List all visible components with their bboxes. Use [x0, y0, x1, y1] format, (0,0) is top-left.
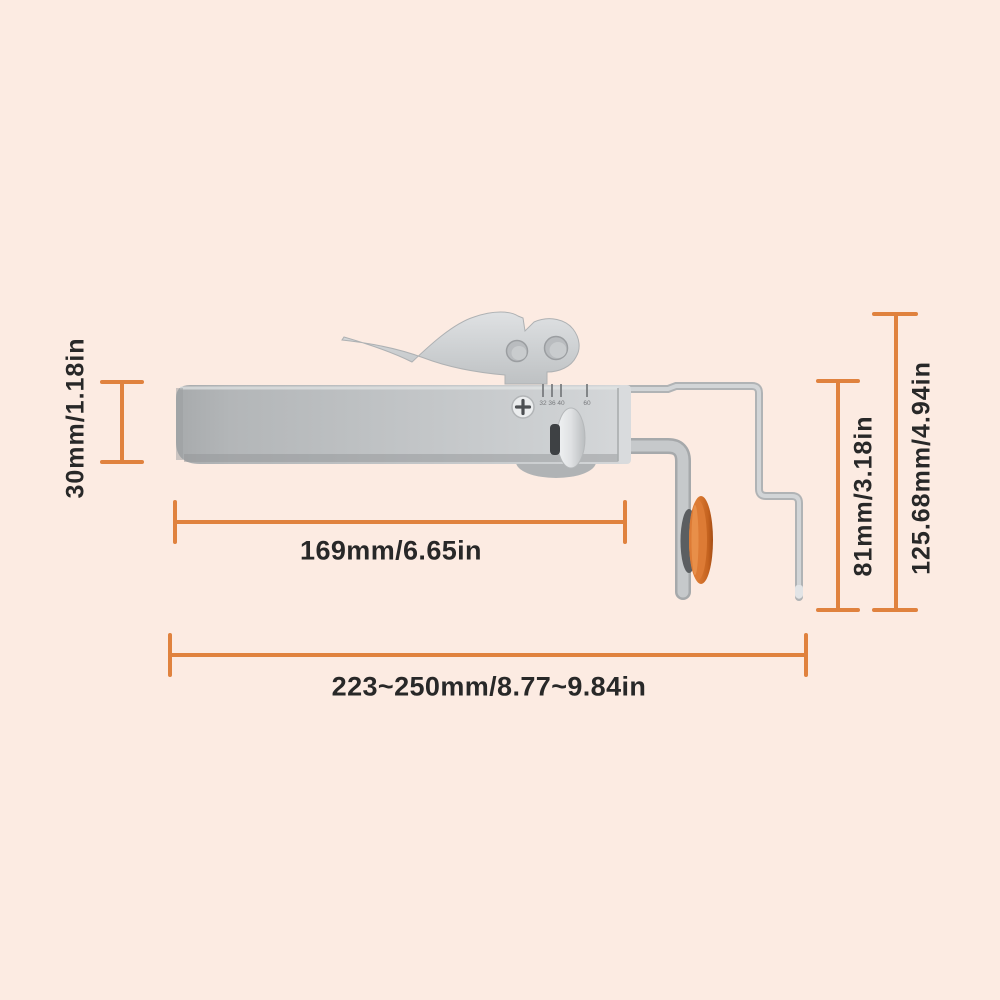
cutting-wheel	[689, 496, 713, 584]
guide-rod-bracket	[626, 386, 803, 598]
dim-body-height-label: 30mm/1.18in	[62, 337, 91, 498]
lever-handle	[342, 312, 579, 384]
depth-scale-end-number: 60	[583, 400, 591, 407]
phillips-screw-icon	[512, 396, 534, 418]
dim-total-height-line	[894, 314, 898, 610]
dim-bracket-height-tick-top	[816, 379, 860, 383]
dim-total-length-tick-right	[804, 633, 808, 677]
dim-total-height-label: 125.68mm/4.94in	[908, 361, 937, 575]
slider-slot	[550, 424, 560, 455]
guide-rod-tip	[795, 585, 803, 598]
dim-body-length-line	[175, 520, 625, 524]
dim-bracket-height-tick-bottom	[816, 608, 860, 612]
dim-bracket-height-label: 81mm/3.18in	[850, 415, 879, 576]
dim-total-length-label: 223~250mm/8.77~9.84in	[332, 672, 647, 703]
dim-body-height-tick-top	[100, 380, 144, 384]
dim-body-length-label: 169mm/6.65in	[300, 536, 482, 567]
depth-scale-numbers: 32 36 40	[539, 400, 565, 407]
cutter-arm	[626, 446, 683, 592]
dim-body-height-tick-bottom	[100, 460, 144, 464]
dim-total-length-tick-left	[168, 633, 172, 677]
dim-total-length-line	[170, 653, 808, 657]
dim-bracket-height-line	[836, 381, 840, 610]
dim-body-height-line	[120, 382, 124, 462]
dim-total-height-tick-top	[872, 312, 918, 316]
dim-total-height-tick-bottom	[872, 608, 918, 612]
bar-end-face	[618, 385, 631, 464]
product-dimension-diagram: 32 36 40 60 30mm/1.18in 169mm/6.65in 223…	[0, 0, 1000, 1000]
dim-body-length-tick-left	[173, 500, 177, 544]
dim-body-length-tick-right	[623, 500, 627, 544]
